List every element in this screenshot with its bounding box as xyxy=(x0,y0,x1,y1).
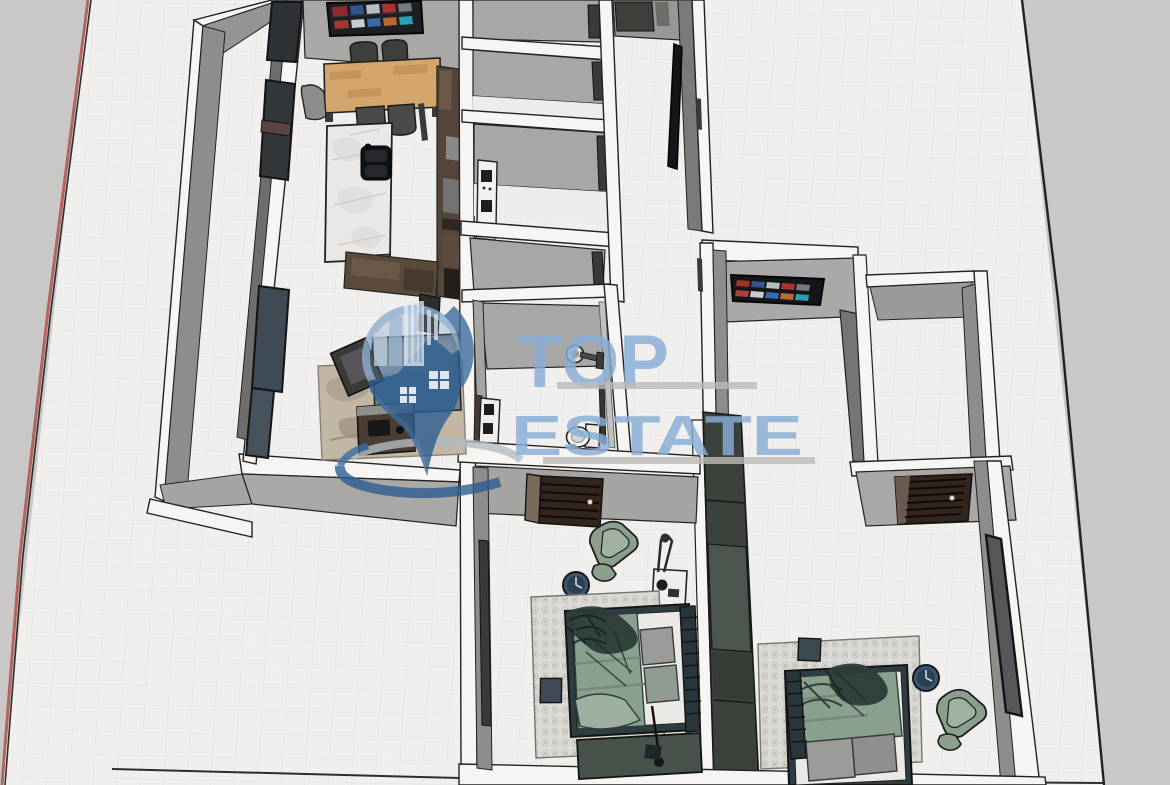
svg-text:TOP: TOP xyxy=(517,319,669,403)
